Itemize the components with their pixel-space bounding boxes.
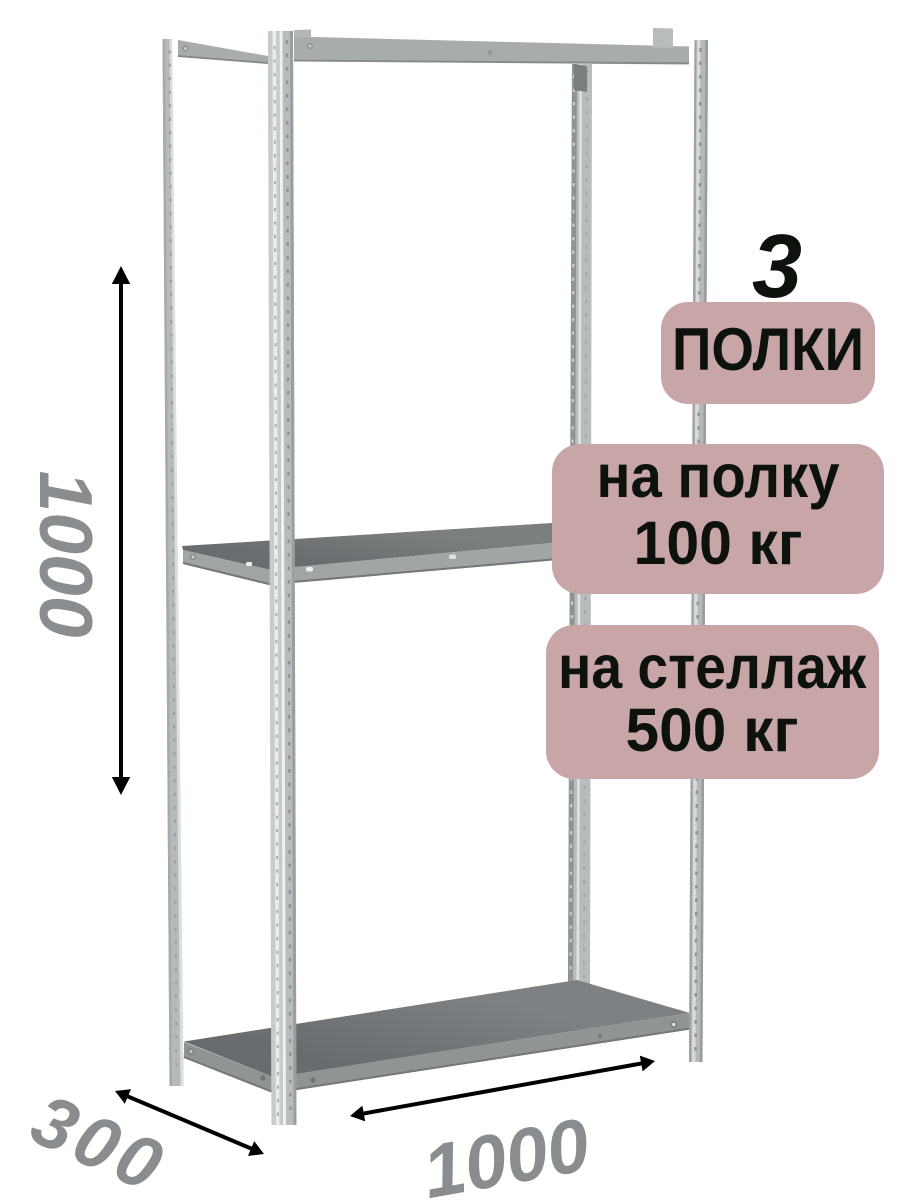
svg-text:на стеллаж: на стеллаж — [558, 633, 867, 701]
svg-text:1000: 1000 — [24, 471, 108, 638]
svg-text:100 кг: 100 кг — [634, 509, 803, 577]
svg-text:на полку: на полку — [597, 442, 840, 510]
svg-text:500 кг: 500 кг — [626, 696, 799, 764]
svg-text:ПОЛКИ: ПОЛКИ — [672, 316, 864, 383]
